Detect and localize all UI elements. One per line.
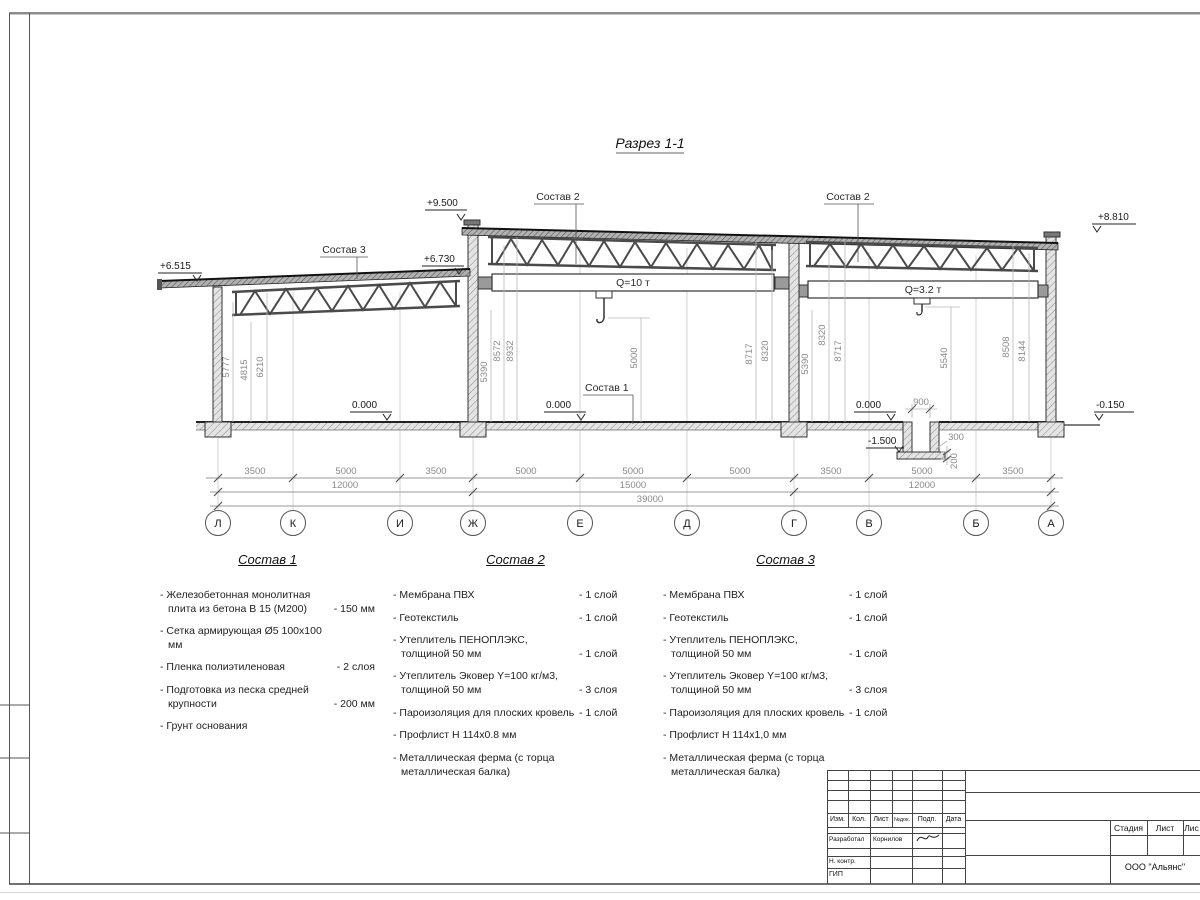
material-name: - Утеплитель ПЕНОПЛЭКС, толщиной 50 мм bbox=[663, 634, 845, 661]
composition-ref-label: Состав 2 bbox=[536, 191, 580, 203]
signature bbox=[915, 830, 941, 845]
material-name: - Пленка полиэтиленовая bbox=[160, 661, 333, 675]
axis-dim: 5000 bbox=[729, 466, 750, 477]
axis-label: Д bbox=[683, 518, 691, 530]
axis-dim: 5000 bbox=[622, 466, 643, 477]
title-block: Изм. Кол. Лист №док. Подп. Дата Разработ… bbox=[827, 770, 1200, 884]
crane-capacity-label: Q=10 т bbox=[616, 277, 650, 289]
tb-col-podp: Подп. bbox=[912, 816, 942, 823]
vdim: 8572 bbox=[492, 340, 503, 361]
axis-label: Л bbox=[214, 518, 221, 530]
material-item: - Пленка полиэтиленовая - 2 слоя bbox=[160, 661, 375, 675]
tb-developer-name: Корнилов bbox=[873, 836, 902, 843]
composition-list-2: Состав 2 - Мембрана ПВХ - 1 слой - Геоте… bbox=[393, 552, 638, 788]
material-name: - Профлист Н 114х0.8 мм bbox=[393, 729, 575, 743]
axis-dim: 3500 bbox=[1002, 466, 1023, 477]
material-item: - Сетка армирующая Ø5 100х100 мм bbox=[160, 625, 375, 652]
floor-pit bbox=[897, 422, 945, 459]
axis-total-dim: 39000 bbox=[637, 494, 663, 505]
crane-capacity-label: Q=3.2 т bbox=[905, 284, 942, 296]
pit-wall-dim: 300 bbox=[948, 432, 964, 443]
tb-col-ndok: №док. bbox=[892, 817, 912, 823]
material-value: - 1 слой bbox=[845, 707, 908, 721]
material-item: - Геотекстиль - 1 слой bbox=[663, 612, 908, 626]
elevation-label: +6.515 bbox=[160, 261, 191, 272]
material-item: - Утеплитель ПЕНОПЛЭКС, толщиной 50 мм -… bbox=[393, 634, 638, 661]
material-name: - Геотекстиль bbox=[663, 612, 845, 626]
vdim: 5390 bbox=[479, 361, 490, 382]
material-item: - Мембрана ПВХ - 1 слой bbox=[663, 589, 908, 603]
material-value: - 3 слоя bbox=[845, 684, 908, 698]
material-name: - Геотекстиль bbox=[393, 612, 575, 626]
floor-slab bbox=[196, 422, 1100, 430]
material-item: - Утеплитель Эковер Y=100 кг/м3, толщино… bbox=[663, 670, 908, 697]
material-name: - Утеплитель Эковер Y=100 кг/м3, толщино… bbox=[393, 670, 575, 697]
axis-dim: 3500 bbox=[425, 466, 446, 477]
axis-dim: 5000 bbox=[911, 466, 932, 477]
axis-label: Ж bbox=[468, 518, 478, 530]
composition-title: Состав 1 bbox=[160, 552, 375, 569]
vdim: 8932 bbox=[505, 340, 516, 361]
axis-label: И bbox=[396, 518, 404, 530]
material-item: - Пароизоляция для плоских кровель - 1 с… bbox=[663, 707, 908, 721]
axis-dim: 15000 bbox=[620, 480, 646, 491]
axis-label: Г bbox=[791, 518, 797, 530]
axis-label: А bbox=[1047, 518, 1055, 530]
vdim: 8144 bbox=[1017, 340, 1028, 361]
composition-ref-label: Состав 1 bbox=[585, 382, 629, 394]
material-value: - 1 слой bbox=[845, 612, 908, 626]
elevation-label: 0.000 bbox=[856, 400, 881, 411]
material-value: - 150 мм bbox=[330, 603, 375, 617]
elevation-label: 0.000 bbox=[546, 400, 571, 411]
axis-dim: 3500 bbox=[820, 466, 841, 477]
vdim: 6210 bbox=[255, 356, 266, 377]
axis-label: В bbox=[865, 518, 872, 530]
tb-sheets: Лис bbox=[1183, 823, 1200, 833]
tb-developer-role: Разработал bbox=[829, 836, 864, 843]
vdim: 8320 bbox=[760, 340, 771, 361]
material-item: - Утеплитель Эковер Y=100 кг/м3, толщино… bbox=[393, 670, 638, 697]
vdim: 5000 bbox=[629, 347, 640, 368]
elevation-label: -0.150 bbox=[1096, 400, 1125, 411]
composition-list-1: Состав 1 - Железобетонная монолитная пли… bbox=[160, 552, 375, 743]
material-item: - Мембрана ПВХ - 1 слой bbox=[393, 589, 638, 603]
material-item: - Подготовка из песка средней крупности … bbox=[160, 684, 375, 711]
vdim: 5777 bbox=[221, 356, 232, 377]
material-name: - Утеплитель ПЕНОПЛЭКС, толщиной 50 мм bbox=[393, 634, 575, 661]
composition-ref-label: Состав 3 bbox=[322, 244, 366, 256]
tb-col-izm: Изм. bbox=[827, 816, 848, 823]
material-item: - Металлическая ферма (с торца металличе… bbox=[393, 752, 638, 779]
material-name: - Профлист Н 114х1,0 мм bbox=[663, 729, 845, 743]
material-value: - 1 слой bbox=[845, 648, 908, 662]
composition-ref-label: Состав 2 bbox=[826, 191, 870, 203]
material-name: - Металлическая ферма (с торца металличе… bbox=[393, 752, 575, 779]
elevation-label: +6.730 bbox=[424, 254, 455, 265]
vdim: 8717 bbox=[833, 340, 844, 361]
material-name: - Мембрана ПВХ bbox=[393, 589, 575, 603]
material-item: - Железобетонная монолитная плита из бет… bbox=[160, 589, 375, 616]
material-value: - 1 слой bbox=[575, 707, 638, 721]
axis-dim: 12000 bbox=[332, 480, 358, 491]
material-name: - Подготовка из песка средней крупности bbox=[160, 684, 330, 711]
vdim: 5540 bbox=[939, 347, 950, 368]
material-name: - Железобетонная монолитная плита из бет… bbox=[160, 589, 330, 616]
axis-dim: 12000 bbox=[909, 480, 935, 491]
vdim: 4815 bbox=[239, 359, 250, 380]
axis-label: Б bbox=[972, 518, 979, 530]
tb-sheet: Лист bbox=[1147, 823, 1183, 833]
composition-title: Состав 2 bbox=[393, 552, 638, 569]
material-item: - Пароизоляция для плоских кровель - 1 с… bbox=[393, 707, 638, 721]
elevation-label: +9.500 bbox=[427, 198, 458, 209]
material-value: - 1 слой bbox=[575, 612, 638, 626]
tb-company: ООО "Альянс" bbox=[1110, 862, 1200, 872]
dim-chains: 3500 5000 3500 5000 5000 5000 3500 5000 … bbox=[206, 466, 1063, 510]
vertical-dim-texts: 5777 4815 6210 5390 8572 8932 5000 8717 … bbox=[221, 324, 1028, 382]
elevation-label: +8.810 bbox=[1098, 212, 1129, 223]
material-name: - Пароизоляция для плоских кровель bbox=[393, 707, 575, 721]
material-value: - 1 слой bbox=[575, 589, 638, 603]
tb-ncontr: Н. контр. bbox=[829, 858, 856, 865]
truss-left bbox=[232, 281, 460, 315]
material-item: - Грунт основания bbox=[160, 720, 375, 734]
material-value: - 1 слой bbox=[575, 648, 638, 662]
composition-title: Состав 3 bbox=[663, 552, 908, 569]
material-item: - Утеплитель ПЕНОПЛЭКС, толщиной 50 мм -… bbox=[663, 634, 908, 661]
material-value: - 1 слой bbox=[845, 589, 908, 603]
material-name: - Грунт основания bbox=[160, 720, 336, 734]
pit-slab-dim: 200 bbox=[949, 453, 960, 469]
material-name: - Металлическая ферма (с торца металличе… bbox=[663, 752, 845, 779]
drawing-title: Разрез 1-1 bbox=[615, 135, 684, 151]
material-name: - Мембрана ПВХ bbox=[663, 589, 845, 603]
axis-label: Е bbox=[576, 518, 583, 530]
vdim: 5390 bbox=[800, 353, 811, 374]
material-item: - Геотекстиль - 1 слой bbox=[393, 612, 638, 626]
material-value: - 3 слоя bbox=[575, 684, 638, 698]
tb-col-kol: Кол. bbox=[848, 816, 870, 823]
crane-beam-mid: Q=10 т bbox=[478, 274, 789, 323]
pit-width-dim: 900 bbox=[913, 397, 929, 408]
material-item: - Профлист Н 114х1,0 мм bbox=[663, 729, 908, 743]
material-value: - 200 мм bbox=[330, 698, 375, 712]
axis-bubbles: Л К И Ж Е Д Г В Б А bbox=[206, 511, 1064, 536]
material-name: - Утеплитель Эковер Y=100 кг/м3, толщино… bbox=[663, 670, 845, 697]
axis-dim: 5000 bbox=[335, 466, 356, 477]
composition-list-3: Состав 3 - Мембрана ПВХ - 1 слой - Геоте… bbox=[663, 552, 908, 788]
axis-label: К bbox=[290, 518, 297, 530]
axis-dim: 3500 bbox=[244, 466, 265, 477]
material-name: - Пароизоляция для плоских кровель bbox=[663, 707, 845, 721]
elevation-label: 0.000 bbox=[352, 400, 377, 411]
elevation-label: -1.500 bbox=[868, 436, 897, 447]
material-item: - Профлист Н 114х0.8 мм bbox=[393, 729, 638, 743]
crane-beam-right: Q=3.2 т bbox=[799, 281, 1048, 315]
tb-col-data: Дата bbox=[942, 816, 965, 823]
material-name: - Сетка армирующая Ø5 100х100 мм bbox=[160, 625, 336, 652]
tb-stage: Стадия bbox=[1110, 823, 1147, 833]
vdim: 8717 bbox=[744, 343, 755, 364]
material-value: - 2 слоя bbox=[333, 661, 375, 675]
vdim: 8320 bbox=[817, 324, 828, 345]
tb-gip: ГИП bbox=[829, 871, 843, 878]
axis-dim: 5000 bbox=[515, 466, 536, 477]
vdim: 8508 bbox=[1001, 336, 1012, 357]
tb-col-list: Лист bbox=[870, 816, 892, 823]
